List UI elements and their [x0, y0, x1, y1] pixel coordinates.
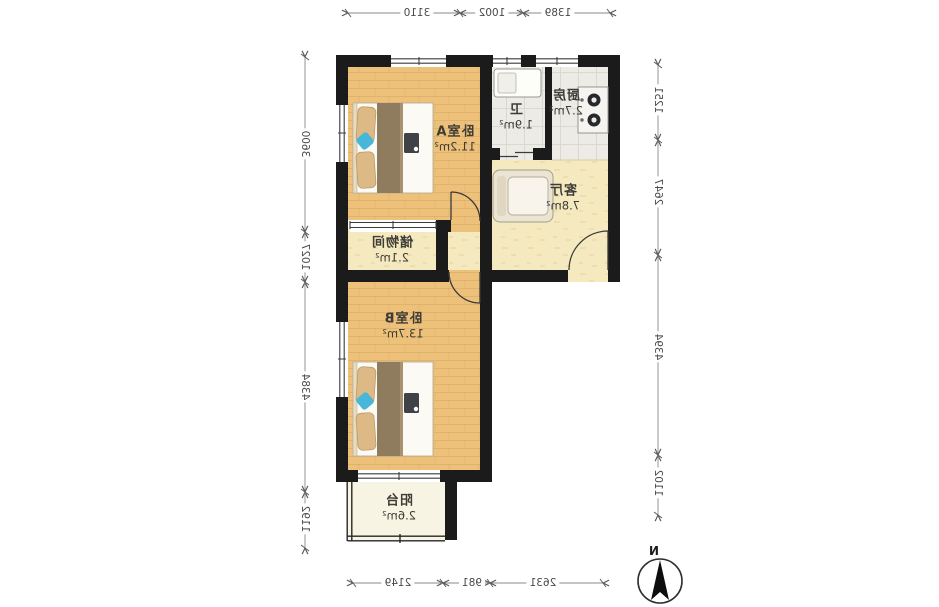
compass-north-label: N: [649, 544, 659, 558]
dim-bottom-2149: 2149: [382, 577, 415, 589]
armchair-living-room: [493, 170, 553, 222]
window-balcony-door: [358, 470, 440, 482]
bed-bedroom-b: [353, 362, 433, 456]
stove-kitchen: [578, 87, 608, 133]
window-bedroom-b-side: [336, 322, 348, 397]
window-bathroom-top: [493, 55, 521, 67]
dim-bottom-2631: 2631: [527, 577, 560, 589]
storage-partition: [350, 220, 436, 232]
dim-bottom-981: 981: [459, 577, 485, 589]
dim-side-1192: 1192: [299, 504, 311, 535]
dim-side-1027: 1027: [299, 242, 311, 273]
bathroom-sliding-door: [500, 148, 533, 160]
dim-side-4394: 4394: [652, 332, 664, 363]
dim-side-4384: 4384: [299, 372, 311, 403]
window-bedroom-a-side: [336, 105, 348, 162]
window-kitchen-top: [536, 55, 578, 67]
floorplan-page: 卧室A 11.2m² 卫 1.9m² 厨房 2.7m² 客厅 7.8m² 储物间…: [0, 0, 939, 607]
dim-side-3600: 3600: [299, 129, 311, 160]
compass: [638, 559, 682, 603]
dim-top-3110: 3110: [401, 7, 434, 19]
bed-bedroom-a: [353, 103, 433, 193]
dim-side-1102: 1102: [652, 468, 664, 499]
window-bedroom-a-top: [391, 55, 446, 67]
dim-top-1002: 1002: [476, 7, 509, 19]
bathroom-fixture: [494, 69, 541, 97]
dim-side-2647: 2647: [652, 177, 664, 208]
dim-top-1389: 1389: [542, 7, 575, 19]
floorplan-svg: [0, 0, 939, 607]
dim-side-1251: 1251: [652, 85, 664, 116]
mirrored-canvas: 卧室A 11.2m² 卫 1.9m² 厨房 2.7m² 客厅 7.8m² 储物间…: [0, 0, 939, 607]
